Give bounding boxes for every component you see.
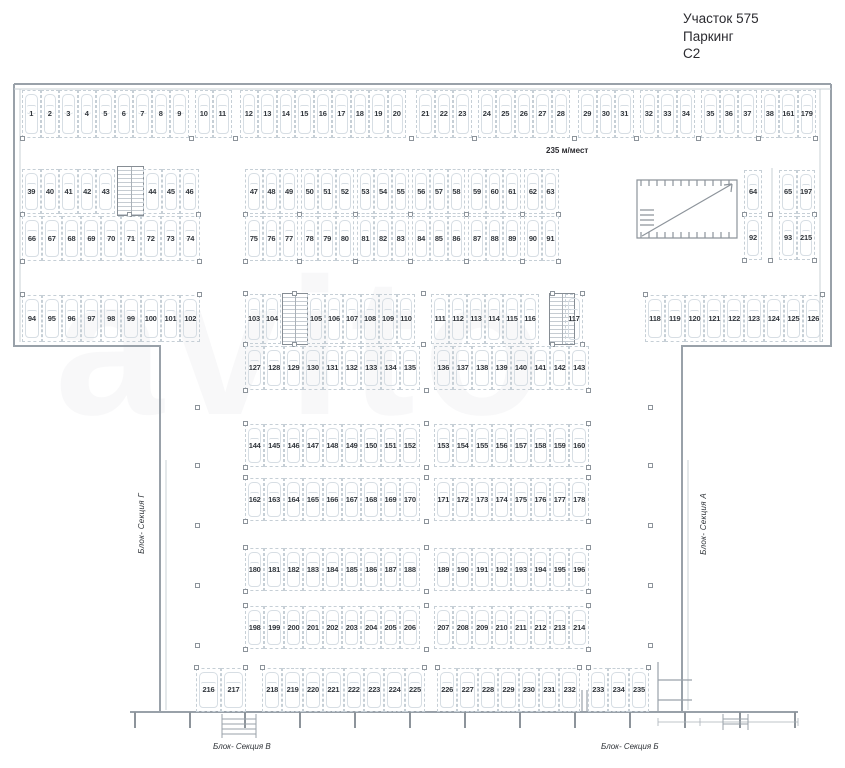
parking-space-24[interactable]: 24 [478, 90, 497, 138]
space-number: 169 [382, 495, 399, 504]
parking-space-148[interactable]: 148 [323, 424, 342, 467]
parking-space-142[interactable]: 142 [550, 346, 569, 390]
parking-space-125[interactable]: 125 [784, 295, 804, 342]
parking-space-108[interactable]: 108 [361, 294, 379, 344]
parking-space-27[interactable]: 27 [533, 90, 552, 138]
parking-space-164[interactable]: 164 [284, 478, 303, 521]
parking-space-43[interactable]: 43 [96, 169, 115, 214]
parking-space-137[interactable]: 137 [453, 346, 472, 390]
parking-space-23[interactable]: 23 [453, 90, 472, 138]
parking-space-143[interactable]: 143 [569, 346, 588, 390]
parking-space-46[interactable]: 46 [180, 169, 199, 214]
parking-space-168[interactable]: 168 [361, 478, 380, 521]
parking-space-51[interactable]: 51 [318, 169, 336, 214]
space-number: 4 [79, 109, 96, 118]
parking-space-98[interactable]: 98 [101, 295, 121, 342]
parking-space-182[interactable]: 182 [284, 548, 303, 591]
parking-space-63[interactable]: 63 [542, 169, 560, 214]
space-number: 33 [659, 109, 676, 118]
parking-space-193[interactable]: 193 [511, 548, 530, 591]
space-number: 155 [473, 441, 490, 450]
parking-space-155[interactable]: 155 [472, 424, 491, 467]
parking-space-123[interactable]: 123 [744, 295, 764, 342]
column-marker [297, 259, 302, 264]
parking-space-204[interactable]: 204 [361, 606, 380, 649]
parking-space-26[interactable]: 26 [515, 90, 534, 138]
parking-space-210[interactable]: 210 [492, 606, 511, 649]
parking-space-30[interactable]: 30 [597, 90, 616, 138]
parking-space-99[interactable]: 99 [121, 295, 141, 342]
space-number: 56 [413, 187, 429, 196]
parking-space-219[interactable]: 219 [282, 668, 302, 712]
parking-space-222[interactable]: 222 [344, 668, 364, 712]
parking-space-144[interactable]: 144 [245, 424, 264, 467]
parking-space-162[interactable]: 162 [245, 478, 264, 521]
parking-space-52[interactable]: 52 [336, 169, 354, 214]
parking-space-40[interactable]: 40 [41, 169, 60, 214]
parking-space-133[interactable]: 133 [361, 346, 380, 390]
parking-space-224[interactable]: 224 [384, 668, 404, 712]
parking-space-156[interactable]: 156 [492, 424, 511, 467]
parking-space-189[interactable]: 189 [434, 548, 453, 591]
parking-space-163[interactable]: 163 [264, 478, 283, 521]
space-number: 176 [532, 495, 549, 504]
space-number: 47 [246, 187, 262, 196]
parking-space-166[interactable]: 166 [323, 478, 342, 521]
parking-space-21[interactable]: 21 [416, 90, 435, 138]
space-number: 57 [431, 187, 447, 196]
parking-space-200[interactable]: 200 [284, 606, 303, 649]
space-number: 58 [449, 187, 465, 196]
space-number: 31 [616, 109, 633, 118]
parking-space-178[interactable]: 178 [569, 478, 588, 521]
parking-space-7[interactable]: 7 [133, 90, 152, 138]
parking-space-105[interactable]: 105 [307, 294, 325, 344]
parking-space-220[interactable]: 220 [303, 668, 323, 712]
parking-space-195[interactable]: 195 [550, 548, 569, 591]
parking-space-13[interactable]: 13 [258, 90, 277, 138]
space-number: 129 [285, 363, 302, 372]
parking-space-228[interactable]: 228 [478, 668, 498, 712]
parking-space-110[interactable]: 110 [397, 294, 415, 344]
parking-space-217[interactable]: 217 [221, 668, 246, 712]
column-marker [20, 292, 25, 297]
parking-space-122[interactable]: 122 [724, 295, 744, 342]
column-marker [260, 665, 265, 670]
space-number: 55 [393, 187, 409, 196]
parking-space-194[interactable]: 194 [531, 548, 550, 591]
space-number: 105 [308, 314, 324, 323]
parking-space-14[interactable]: 14 [277, 90, 296, 138]
parking-space-172[interactable]: 172 [453, 478, 472, 521]
parking-space-64[interactable]: 64 [744, 170, 762, 214]
parking-space-229[interactable]: 229 [498, 668, 518, 712]
parking-space-62[interactable]: 62 [524, 169, 542, 214]
parking-space-191[interactable]: 191 [472, 548, 491, 591]
column-marker [586, 589, 591, 594]
parking-space-230[interactable]: 230 [519, 668, 539, 712]
parking-space-114[interactable]: 114 [485, 294, 503, 344]
parking-space-197[interactable]: 197 [797, 170, 815, 214]
space-number: 96 [63, 314, 81, 323]
parking-space-15[interactable]: 15 [295, 90, 314, 138]
parking-space-32[interactable]: 32 [640, 90, 659, 138]
parking-space-196[interactable]: 196 [569, 548, 588, 591]
parking-space-6[interactable]: 6 [115, 90, 134, 138]
parking-space-120[interactable]: 120 [685, 295, 705, 342]
space-number: 162 [246, 495, 263, 504]
section-label-right: Блок- Секция А [699, 493, 708, 555]
parking-space-48[interactable]: 48 [263, 169, 281, 214]
column-marker [195, 643, 200, 648]
column-marker [586, 545, 591, 550]
parking-space-207[interactable]: 207 [434, 606, 453, 649]
parking-space-218[interactable]: 218 [262, 668, 282, 712]
parking-space-80[interactable]: 80 [336, 216, 354, 261]
parking-space-61[interactable]: 61 [503, 169, 521, 214]
parking-space-130[interactable]: 130 [303, 346, 322, 390]
parking-space-58[interactable]: 58 [448, 169, 466, 214]
parking-space-126[interactable]: 126 [803, 295, 823, 342]
parking-space-129[interactable]: 129 [284, 346, 303, 390]
parking-space-44[interactable]: 44 [143, 169, 162, 214]
parking-space-116[interactable]: 116 [521, 294, 539, 344]
space-number: 128 [265, 363, 282, 372]
parking-space-221[interactable]: 221 [323, 668, 343, 712]
parking-space-66[interactable]: 66 [22, 216, 42, 261]
parking-space-184[interactable]: 184 [323, 548, 342, 591]
parking-space-135[interactable]: 135 [400, 346, 419, 390]
parking-space-203[interactable]: 203 [342, 606, 361, 649]
parking-space-201[interactable]: 201 [303, 606, 322, 649]
parking-space-158[interactable]: 158 [531, 424, 550, 467]
parking-space-84[interactable]: 84 [412, 216, 430, 261]
parking-space-76[interactable]: 76 [263, 216, 281, 261]
column-marker [243, 665, 248, 670]
space-number: 134 [382, 363, 399, 372]
parking-space-67[interactable]: 67 [42, 216, 62, 261]
space-number: 146 [285, 441, 302, 450]
parking-space-36[interactable]: 36 [720, 90, 739, 138]
parking-space-208[interactable]: 208 [453, 606, 472, 649]
parking-space-38[interactable]: 38 [761, 90, 780, 138]
parking-space-4[interactable]: 4 [78, 90, 97, 138]
parking-space-71[interactable]: 71 [121, 216, 141, 261]
parking-space-87[interactable]: 87 [468, 216, 486, 261]
parking-space-141[interactable]: 141 [531, 346, 550, 390]
parking-space-55[interactable]: 55 [392, 169, 410, 214]
column-marker [20, 259, 25, 264]
parking-space-34[interactable]: 34 [677, 90, 696, 138]
space-number: 38 [762, 109, 779, 118]
parking-space-124[interactable]: 124 [764, 295, 784, 342]
parking-space-9[interactable]: 9 [170, 90, 189, 138]
parking-space-19[interactable]: 19 [369, 90, 388, 138]
parking-space-10[interactable]: 10 [195, 90, 214, 138]
space-number: 16 [315, 109, 332, 118]
space-number: 213 [551, 623, 568, 632]
parking-space-31[interactable]: 31 [615, 90, 634, 138]
parking-space-45[interactable]: 45 [162, 169, 181, 214]
parking-space-47[interactable]: 47 [245, 169, 263, 214]
parking-space-132[interactable]: 132 [342, 346, 361, 390]
parking-space-91[interactable]: 91 [542, 216, 560, 261]
parking-space-22[interactable]: 22 [435, 90, 454, 138]
parking-space-12[interactable]: 12 [240, 90, 259, 138]
parking-space-216[interactable]: 216 [196, 668, 221, 712]
parking-space-74[interactable]: 74 [180, 216, 200, 261]
parking-space-90[interactable]: 90 [524, 216, 542, 261]
parking-space-50[interactable]: 50 [301, 169, 319, 214]
parking-space-212[interactable]: 212 [531, 606, 550, 649]
parking-space-119[interactable]: 119 [665, 295, 685, 342]
space-number: 179 [799, 109, 816, 118]
parking-space-225[interactable]: 225 [405, 668, 425, 712]
parking-space-59[interactable]: 59 [468, 169, 486, 214]
parking-space-152[interactable]: 152 [400, 424, 419, 467]
parking-space-185[interactable]: 185 [342, 548, 361, 591]
parking-space-73[interactable]: 73 [161, 216, 181, 261]
parking-space-95[interactable]: 95 [42, 295, 62, 342]
space-number: 172 [454, 495, 471, 504]
parking-space-86[interactable]: 86 [448, 216, 466, 261]
parking-space-93[interactable]: 93 [779, 216, 797, 260]
parking-space-75[interactable]: 75 [245, 216, 263, 261]
parking-space-179[interactable]: 179 [798, 90, 817, 138]
parking-space-214[interactable]: 214 [569, 606, 588, 649]
space-number: 115 [504, 314, 520, 323]
parking-space-134[interactable]: 134 [381, 346, 400, 390]
parking-space-106[interactable]: 106 [325, 294, 343, 344]
parking-space-139[interactable]: 139 [492, 346, 511, 390]
parking-space-160[interactable]: 160 [569, 424, 588, 467]
parking-space-159[interactable]: 159 [550, 424, 569, 467]
parking-space-128[interactable]: 128 [264, 346, 283, 390]
space-number: 66 [23, 234, 41, 243]
parking-space-170[interactable]: 170 [400, 478, 419, 521]
parking-space-111[interactable]: 111 [431, 294, 449, 344]
parking-space-209[interactable]: 209 [472, 606, 491, 649]
parking-space-20[interactable]: 20 [388, 90, 407, 138]
space-number: 151 [382, 441, 399, 450]
parking-space-202[interactable]: 202 [323, 606, 342, 649]
parking-space-65[interactable]: 65 [779, 170, 797, 214]
space-number: 29 [579, 109, 596, 118]
parking-space-145[interactable]: 145 [264, 424, 283, 467]
space-number: 37 [739, 109, 756, 118]
column-marker [820, 292, 825, 297]
parking-space-57[interactable]: 57 [430, 169, 448, 214]
parking-space-5[interactable]: 5 [96, 90, 115, 138]
parking-space-72[interactable]: 72 [141, 216, 161, 261]
parking-space-186[interactable]: 186 [361, 548, 380, 591]
space-number: 59 [469, 187, 485, 196]
parking-space-102[interactable]: 102 [180, 295, 200, 342]
parking-space-136[interactable]: 136 [434, 346, 453, 390]
space-number: 215 [798, 233, 814, 242]
parking-space-150[interactable]: 150 [361, 424, 380, 467]
parking-space-92[interactable]: 92 [744, 216, 762, 260]
parking-space-127[interactable]: 127 [245, 346, 264, 390]
parking-space-35[interactable]: 35 [701, 90, 720, 138]
parking-space-112[interactable]: 112 [449, 294, 467, 344]
parking-space-96[interactable]: 96 [62, 295, 82, 342]
space-number: 75 [246, 234, 262, 243]
parking-space-117[interactable]: 117 [565, 294, 583, 344]
parking-space-233[interactable]: 233 [588, 668, 608, 712]
parking-space-60[interactable]: 60 [486, 169, 504, 214]
parking-space-151[interactable]: 151 [381, 424, 400, 467]
parking-space-37[interactable]: 37 [738, 90, 757, 138]
parking-space-154[interactable]: 154 [453, 424, 472, 467]
parking-space-167[interactable]: 167 [342, 478, 361, 521]
parking-space-153[interactable]: 153 [434, 424, 453, 467]
parking-space-173[interactable]: 173 [472, 478, 491, 521]
column-marker [696, 136, 701, 141]
parking-space-70[interactable]: 70 [101, 216, 121, 261]
parking-space-101[interactable]: 101 [161, 295, 181, 342]
parking-space-28[interactable]: 28 [552, 90, 571, 138]
parking-space-83[interactable]: 83 [392, 216, 410, 261]
parking-space-17[interactable]: 17 [332, 90, 351, 138]
parking-space-171[interactable]: 171 [434, 478, 453, 521]
parking-space-198[interactable]: 198 [245, 606, 264, 649]
space-number: 50 [302, 187, 318, 196]
parking-space-33[interactable]: 33 [658, 90, 677, 138]
parking-space-3[interactable]: 3 [59, 90, 78, 138]
parking-space-231[interactable]: 231 [539, 668, 559, 712]
parking-space-118[interactable]: 118 [645, 295, 665, 342]
parking-space-138[interactable]: 138 [472, 346, 491, 390]
parking-space-16[interactable]: 16 [314, 90, 333, 138]
parking-space-174[interactable]: 174 [492, 478, 511, 521]
column-marker [243, 259, 248, 264]
parking-space-176[interactable]: 176 [531, 478, 550, 521]
parking-space-206[interactable]: 206 [400, 606, 419, 649]
parking-space-131[interactable]: 131 [323, 346, 342, 390]
parking-space-104[interactable]: 104 [263, 294, 281, 344]
space-number: 191 [473, 565, 490, 574]
parking-space-82[interactable]: 82 [374, 216, 392, 261]
parking-space-205[interactable]: 205 [381, 606, 400, 649]
column-marker [472, 136, 477, 141]
parking-space-165[interactable]: 165 [303, 478, 322, 521]
parking-space-213[interactable]: 213 [550, 606, 569, 649]
parking-space-100[interactable]: 100 [141, 295, 161, 342]
space-number: 19 [370, 109, 387, 118]
parking-space-140[interactable]: 140 [511, 346, 530, 390]
parking-space-147[interactable]: 147 [303, 424, 322, 467]
parking-space-78[interactable]: 78 [301, 216, 319, 261]
parking-space-226[interactable]: 226 [437, 668, 457, 712]
space-number: 222 [345, 685, 363, 694]
parking-space-121[interactable]: 121 [704, 295, 724, 342]
parking-space-56[interactable]: 56 [412, 169, 430, 214]
parking-space-199[interactable]: 199 [264, 606, 283, 649]
parking-space-227[interactable]: 227 [457, 668, 477, 712]
parking-space-39[interactable]: 39 [22, 169, 41, 214]
parking-space-97[interactable]: 97 [81, 295, 101, 342]
space-number: 214 [570, 623, 587, 632]
parking-space-107[interactable]: 107 [343, 294, 361, 344]
parking-space-215[interactable]: 215 [797, 216, 815, 260]
space-number: 87 [469, 234, 485, 243]
parking-space-2[interactable]: 2 [41, 90, 60, 138]
parking-space-85[interactable]: 85 [430, 216, 448, 261]
parking-space-192[interactable]: 192 [492, 548, 511, 591]
parking-space-115[interactable]: 115 [503, 294, 521, 344]
space-number: 89 [504, 234, 520, 243]
parking-space-149[interactable]: 149 [342, 424, 361, 467]
parking-space-169[interactable]: 169 [381, 478, 400, 521]
parking-space-81[interactable]: 81 [357, 216, 375, 261]
parking-space-183[interactable]: 183 [303, 548, 322, 591]
parking-space-68[interactable]: 68 [62, 216, 82, 261]
parking-space-41[interactable]: 41 [59, 169, 78, 214]
column-marker [586, 665, 591, 670]
parking-space-235[interactable]: 235 [629, 668, 649, 712]
parking-space-175[interactable]: 175 [511, 478, 530, 521]
parking-space-146[interactable]: 146 [284, 424, 303, 467]
parking-space-42[interactable]: 42 [78, 169, 97, 214]
parking-space-18[interactable]: 18 [351, 90, 370, 138]
parking-space-88[interactable]: 88 [486, 216, 504, 261]
space-number: 174 [493, 495, 510, 504]
parking-space-181[interactable]: 181 [264, 548, 283, 591]
space-number: 32 [641, 109, 658, 118]
parking-space-69[interactable]: 69 [81, 216, 101, 261]
space-number: 166 [324, 495, 341, 504]
parking-space-232[interactable]: 232 [559, 668, 579, 712]
parking-space-177[interactable]: 177 [550, 478, 569, 521]
parking-space-29[interactable]: 29 [578, 90, 597, 138]
parking-spaces-layer: 1234567891011121314151617181920212223242… [0, 0, 845, 768]
space-number: 21 [417, 109, 434, 118]
parking-space-54[interactable]: 54 [374, 169, 392, 214]
space-number: 183 [304, 565, 321, 574]
parking-space-211[interactable]: 211 [511, 606, 530, 649]
parking-space-190[interactable]: 190 [453, 548, 472, 591]
space-number: 212 [532, 623, 549, 632]
parking-space-89[interactable]: 89 [503, 216, 521, 261]
parking-space-180[interactable]: 180 [245, 548, 264, 591]
parking-space-1[interactable]: 1 [22, 90, 41, 138]
parking-space-113[interactable]: 113 [467, 294, 485, 344]
parking-space-103[interactable]: 103 [245, 294, 263, 344]
parking-space-11[interactable]: 11 [213, 90, 232, 138]
space-number: 22 [436, 109, 453, 118]
parking-space-94[interactable]: 94 [22, 295, 42, 342]
parking-space-109[interactable]: 109 [379, 294, 397, 344]
parking-space-234[interactable]: 234 [608, 668, 628, 712]
column-marker [243, 589, 248, 594]
parking-space-49[interactable]: 49 [280, 169, 298, 214]
parking-space-25[interactable]: 25 [496, 90, 515, 138]
parking-space-223[interactable]: 223 [364, 668, 384, 712]
parking-space-187[interactable]: 187 [381, 548, 400, 591]
parking-space-53[interactable]: 53 [357, 169, 375, 214]
space-number: 51 [319, 187, 335, 196]
parking-space-79[interactable]: 79 [318, 216, 336, 261]
space-number: 103 [246, 314, 262, 323]
parking-space-157[interactable]: 157 [511, 424, 530, 467]
section-label-left: Блок- Секция Г [137, 493, 146, 554]
space-number: 24 [479, 109, 496, 118]
parking-space-8[interactable]: 8 [152, 90, 171, 138]
parking-space-77[interactable]: 77 [280, 216, 298, 261]
parking-space-188[interactable]: 188 [400, 548, 419, 591]
parking-space-161[interactable]: 161 [779, 90, 798, 138]
